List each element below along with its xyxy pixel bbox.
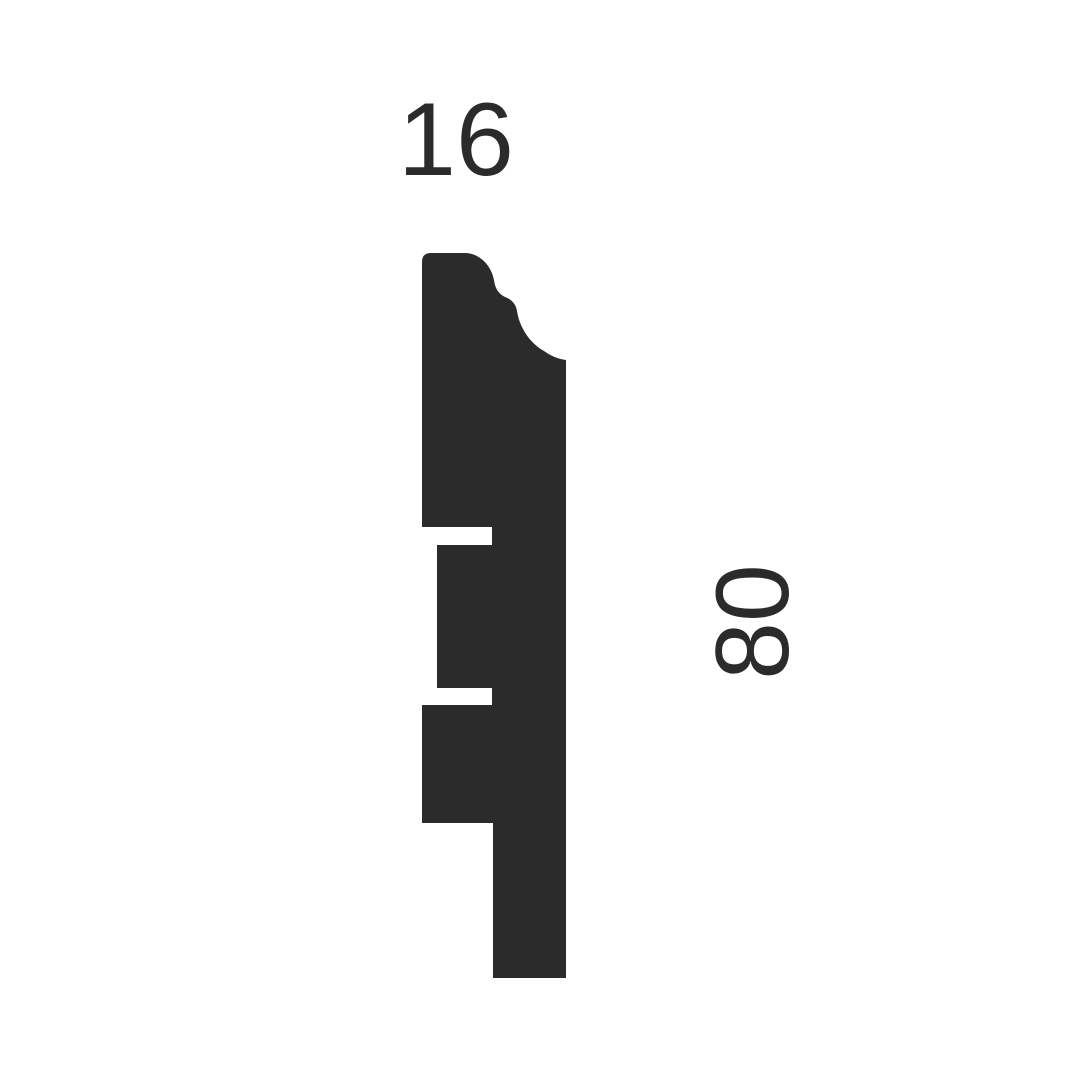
profile-silhouette (422, 253, 566, 978)
width-dimension-label: 16 (398, 88, 514, 192)
molding-profile-drawing (0, 0, 1080, 1080)
height-dimension-label: 80 (701, 564, 805, 680)
diagram-canvas: 16 80 (0, 0, 1080, 1080)
